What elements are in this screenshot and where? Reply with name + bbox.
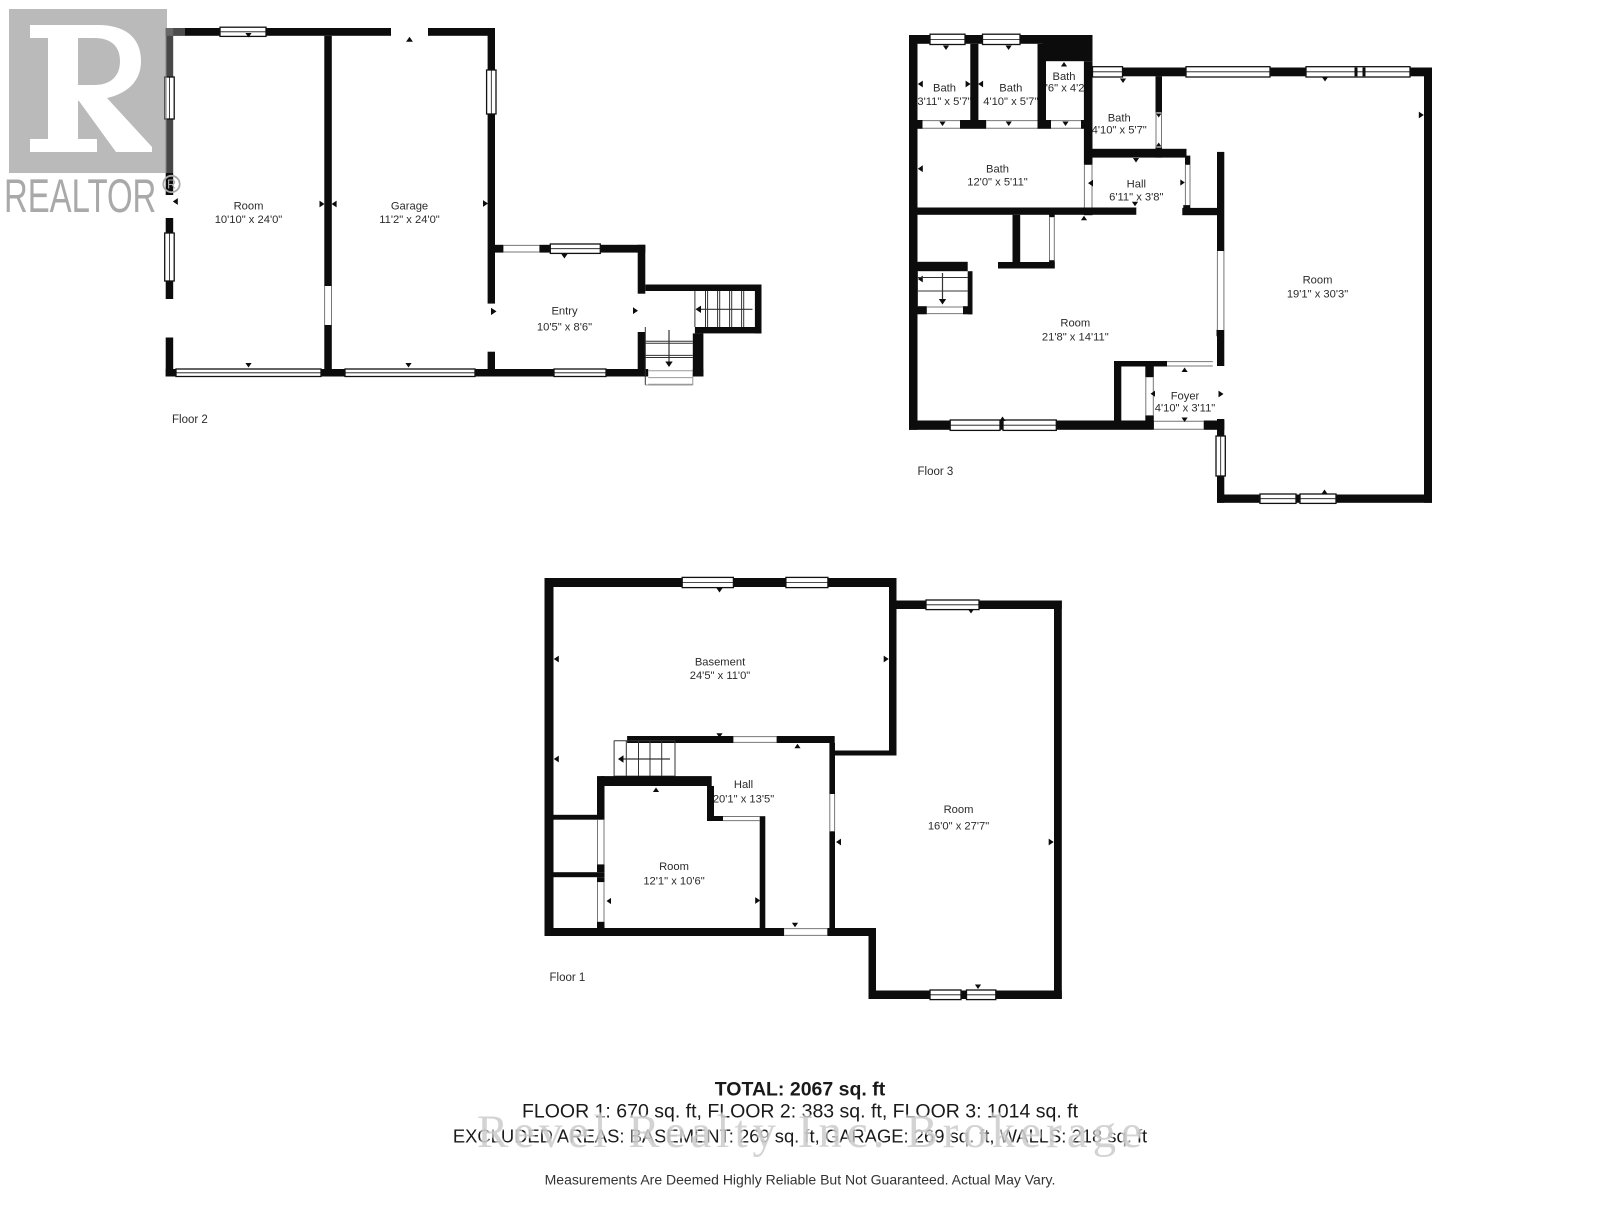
svg-text:4'10" x 5'7": 4'10" x 5'7" xyxy=(1092,125,1147,137)
svg-text:Room: Room xyxy=(1060,318,1090,330)
svg-text:2'6" x 4'2": 2'6" x 4'2" xyxy=(1040,83,1089,95)
svg-text:24'5" x 11'0": 24'5" x 11'0" xyxy=(690,670,751,682)
svg-text:Bath: Bath xyxy=(986,164,1009,176)
svg-text:3'11" x 5'7": 3'11" x 5'7" xyxy=(917,96,971,108)
svg-text:6'11" x 3'8": 6'11" x 3'8" xyxy=(1109,192,1163,204)
svg-text:REALTOR: REALTOR xyxy=(4,169,156,222)
svg-text:11'2" x 24'0": 11'2" x 24'0" xyxy=(379,214,440,226)
svg-text:21'8" x 14'11": 21'8" x 14'11" xyxy=(1042,331,1109,343)
svg-text:Hall: Hall xyxy=(734,779,753,791)
svg-text:Entry: Entry xyxy=(551,306,578,318)
svg-text:10'10" x 24'0": 10'10" x 24'0" xyxy=(215,214,283,226)
svg-text:16'0" x 27'7": 16'0" x 27'7" xyxy=(928,821,989,833)
svg-text:12'0" x 5'11": 12'0" x 5'11" xyxy=(967,177,1028,189)
svg-text:Room: Room xyxy=(234,201,264,213)
svg-text:20'1" x 13'5": 20'1" x 13'5" xyxy=(713,794,774,806)
svg-text:4'10" x 3'11": 4'10" x 3'11" xyxy=(1155,402,1216,414)
svg-text:Measurements Are Deemed Highly: Measurements Are Deemed Highly Reliable … xyxy=(545,1172,1056,1188)
svg-text:Floor 2: Floor 2 xyxy=(172,414,208,426)
svg-text:Floor 1: Floor 1 xyxy=(550,972,586,984)
svg-text:Hall: Hall xyxy=(1127,179,1146,191)
svg-text:Room: Room xyxy=(1303,275,1333,287)
svg-text:Bath: Bath xyxy=(999,83,1022,95)
svg-text:Revel Realty Inc. Brokerage: Revel Realty Inc. Brokerage xyxy=(477,1106,1147,1158)
svg-text:19'1" x 30'3": 19'1" x 30'3" xyxy=(1287,288,1348,300)
svg-text:4'10" x 5'7": 4'10" x 5'7" xyxy=(983,96,1038,108)
svg-text:Foyer: Foyer xyxy=(1171,391,1200,403)
svg-text:Floor 3: Floor 3 xyxy=(918,466,954,478)
svg-text:Basement: Basement xyxy=(695,657,746,669)
svg-text:12'1" x 10'6": 12'1" x 10'6" xyxy=(643,875,704,887)
svg-text:Bath: Bath xyxy=(1052,71,1075,83)
svg-text:Garage: Garage xyxy=(391,201,428,213)
svg-text:Room: Room xyxy=(659,861,689,873)
svg-text:Bath: Bath xyxy=(1108,113,1131,125)
svg-text:Bath: Bath xyxy=(933,83,956,95)
svg-text:Room: Room xyxy=(944,804,974,816)
svg-text:TOTAL: 2067 sq. ft: TOTAL: 2067 sq. ft xyxy=(715,1079,886,1101)
svg-text:R: R xyxy=(167,178,176,192)
svg-text:10'5" x 8'6": 10'5" x 8'6" xyxy=(537,322,592,334)
